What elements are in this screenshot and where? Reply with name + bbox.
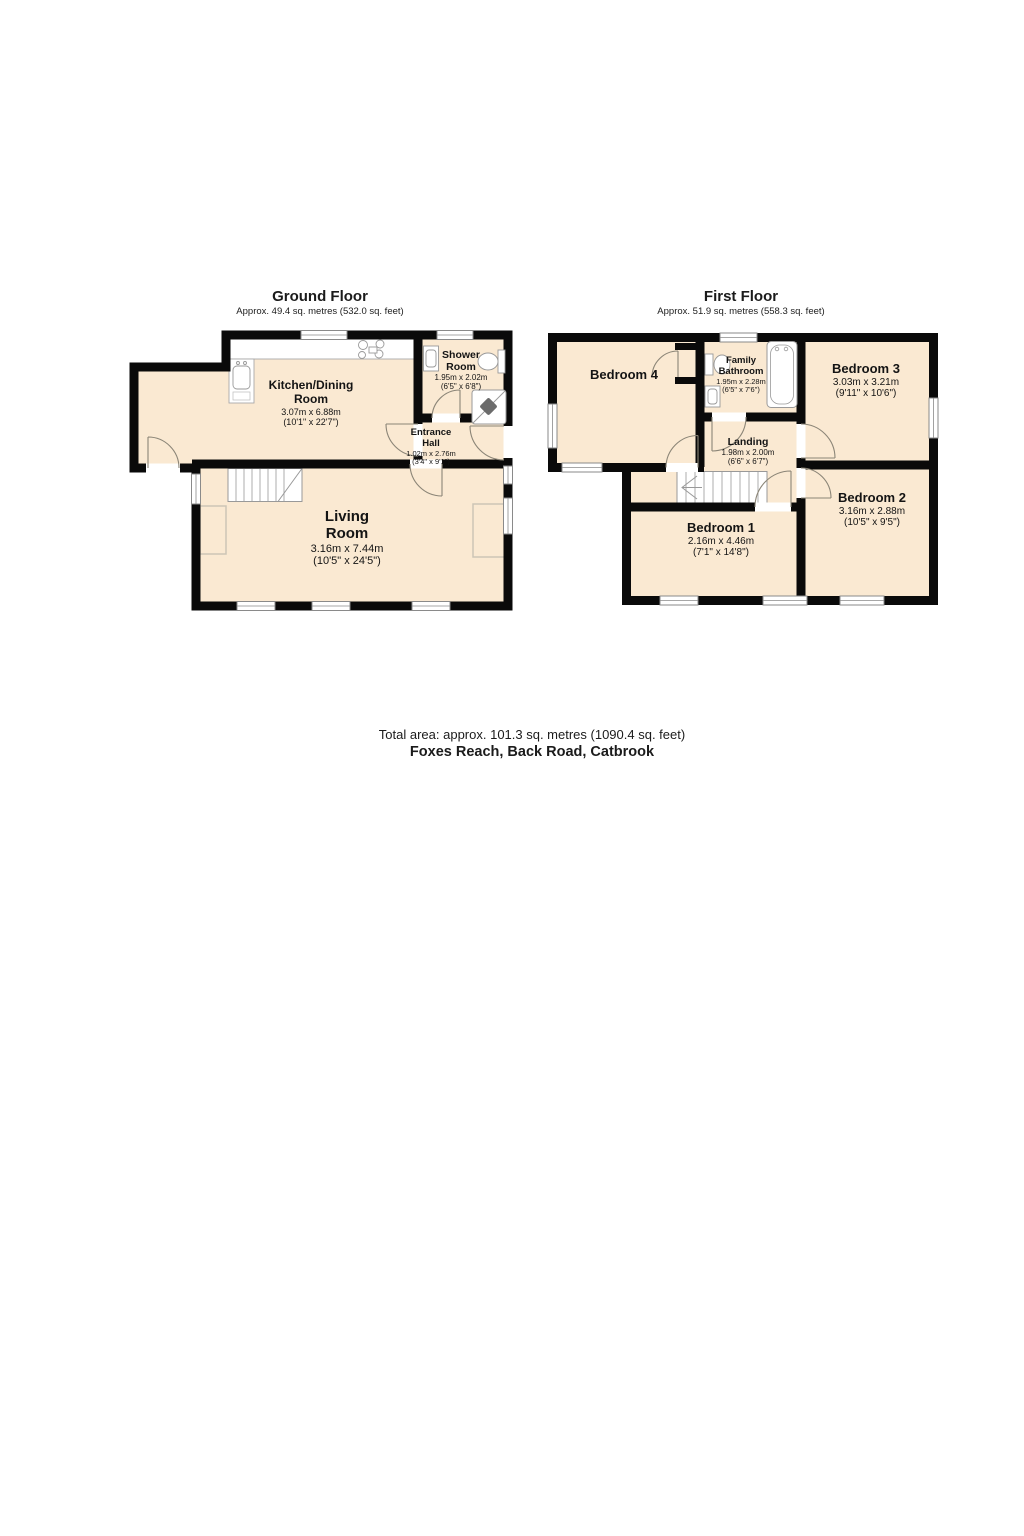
- room-label-bedroom-3: Bedroom 3 3.03m x 3.21m (9'11" x 10'6"): [811, 362, 921, 400]
- room-label-kitchen-dining: Kitchen/Dining Room 3.07m x 6.88m (10'1"…: [256, 379, 366, 427]
- property-address: Foxes Reach, Back Road, Catbrook: [410, 744, 654, 760]
- room-label-bedroom-2: Bedroom 2 3.16m x 2.88m (10'5" x 9'5"): [817, 491, 927, 529]
- floorplan-page: Ground Floor Approx. 49.4 sq. metres (53…: [0, 0, 1024, 1536]
- ground-floor-subtitle: Approx. 49.4 sq. metres (532.0 sq. feet): [236, 306, 403, 317]
- room-label-family-bathroom: Family Bathroom 1.95m x 2.28m (6'5" x 7'…: [709, 356, 773, 395]
- ground-floor-title: Ground Floor: [272, 288, 368, 305]
- first-floor-subtitle: Approx. 51.9 sq. metres (558.3 sq. feet): [657, 306, 824, 317]
- total-area-text: Total area: approx. 101.3 sq. metres (10…: [379, 727, 685, 742]
- first-stairs: [677, 472, 767, 504]
- room-label-landing: Landing 1.98m x 2.00m (6'6" x 6'7"): [703, 436, 793, 466]
- cupboard-jamb-top: [675, 343, 700, 350]
- corner-shower-icon: [472, 390, 506, 424]
- room-label-entrance-hall: Entrance Hall 1.02m x 2.76m (3'4" x 9'1"…: [396, 428, 466, 467]
- floorplan-graphics: [0, 0, 1024, 1536]
- room-label-bedroom-4: Bedroom 4: [574, 368, 674, 383]
- cupboard-jamb-bottom: [675, 377, 700, 384]
- room-label-bedroom-1: Bedroom 1 2.16m x 4.46m (7'1" x 14'8"): [666, 521, 776, 559]
- room-label-living-room: Living Room 3.16m x 7.44m (10'5" x 24'5"…: [287, 508, 407, 568]
- room-label-shower-room: Shower Room 1.95m x 2.02m (6'5" x 6'8"): [426, 349, 496, 392]
- first-floor-title: First Floor: [704, 288, 778, 305]
- ground-stairs: [228, 469, 302, 502]
